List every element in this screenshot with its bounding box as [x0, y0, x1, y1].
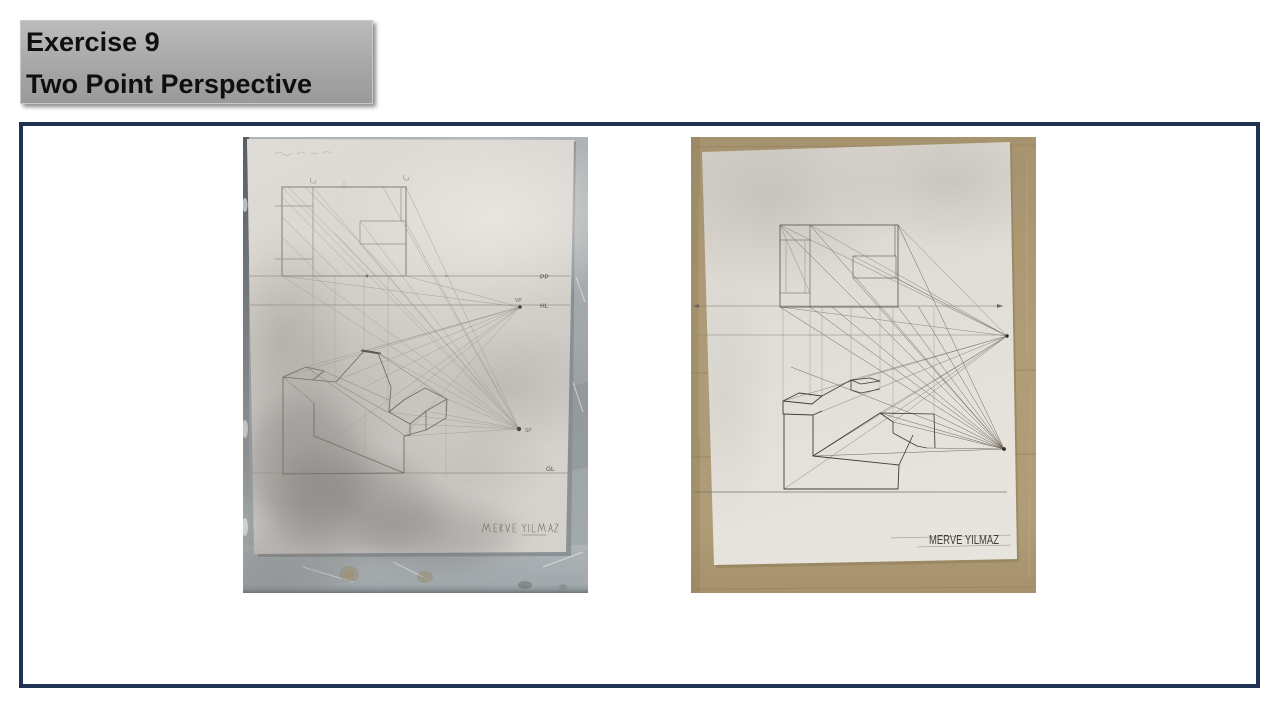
- svg-text:MERVE YILMAZ: MERVE YILMAZ: [929, 533, 999, 547]
- svg-text:VP: VP: [515, 298, 522, 304]
- svg-text:GL: GL: [546, 466, 555, 473]
- svg-text:PP: PP: [540, 274, 549, 281]
- svg-text:SP: SP: [525, 428, 532, 434]
- svg-text:HL: HL: [540, 303, 549, 310]
